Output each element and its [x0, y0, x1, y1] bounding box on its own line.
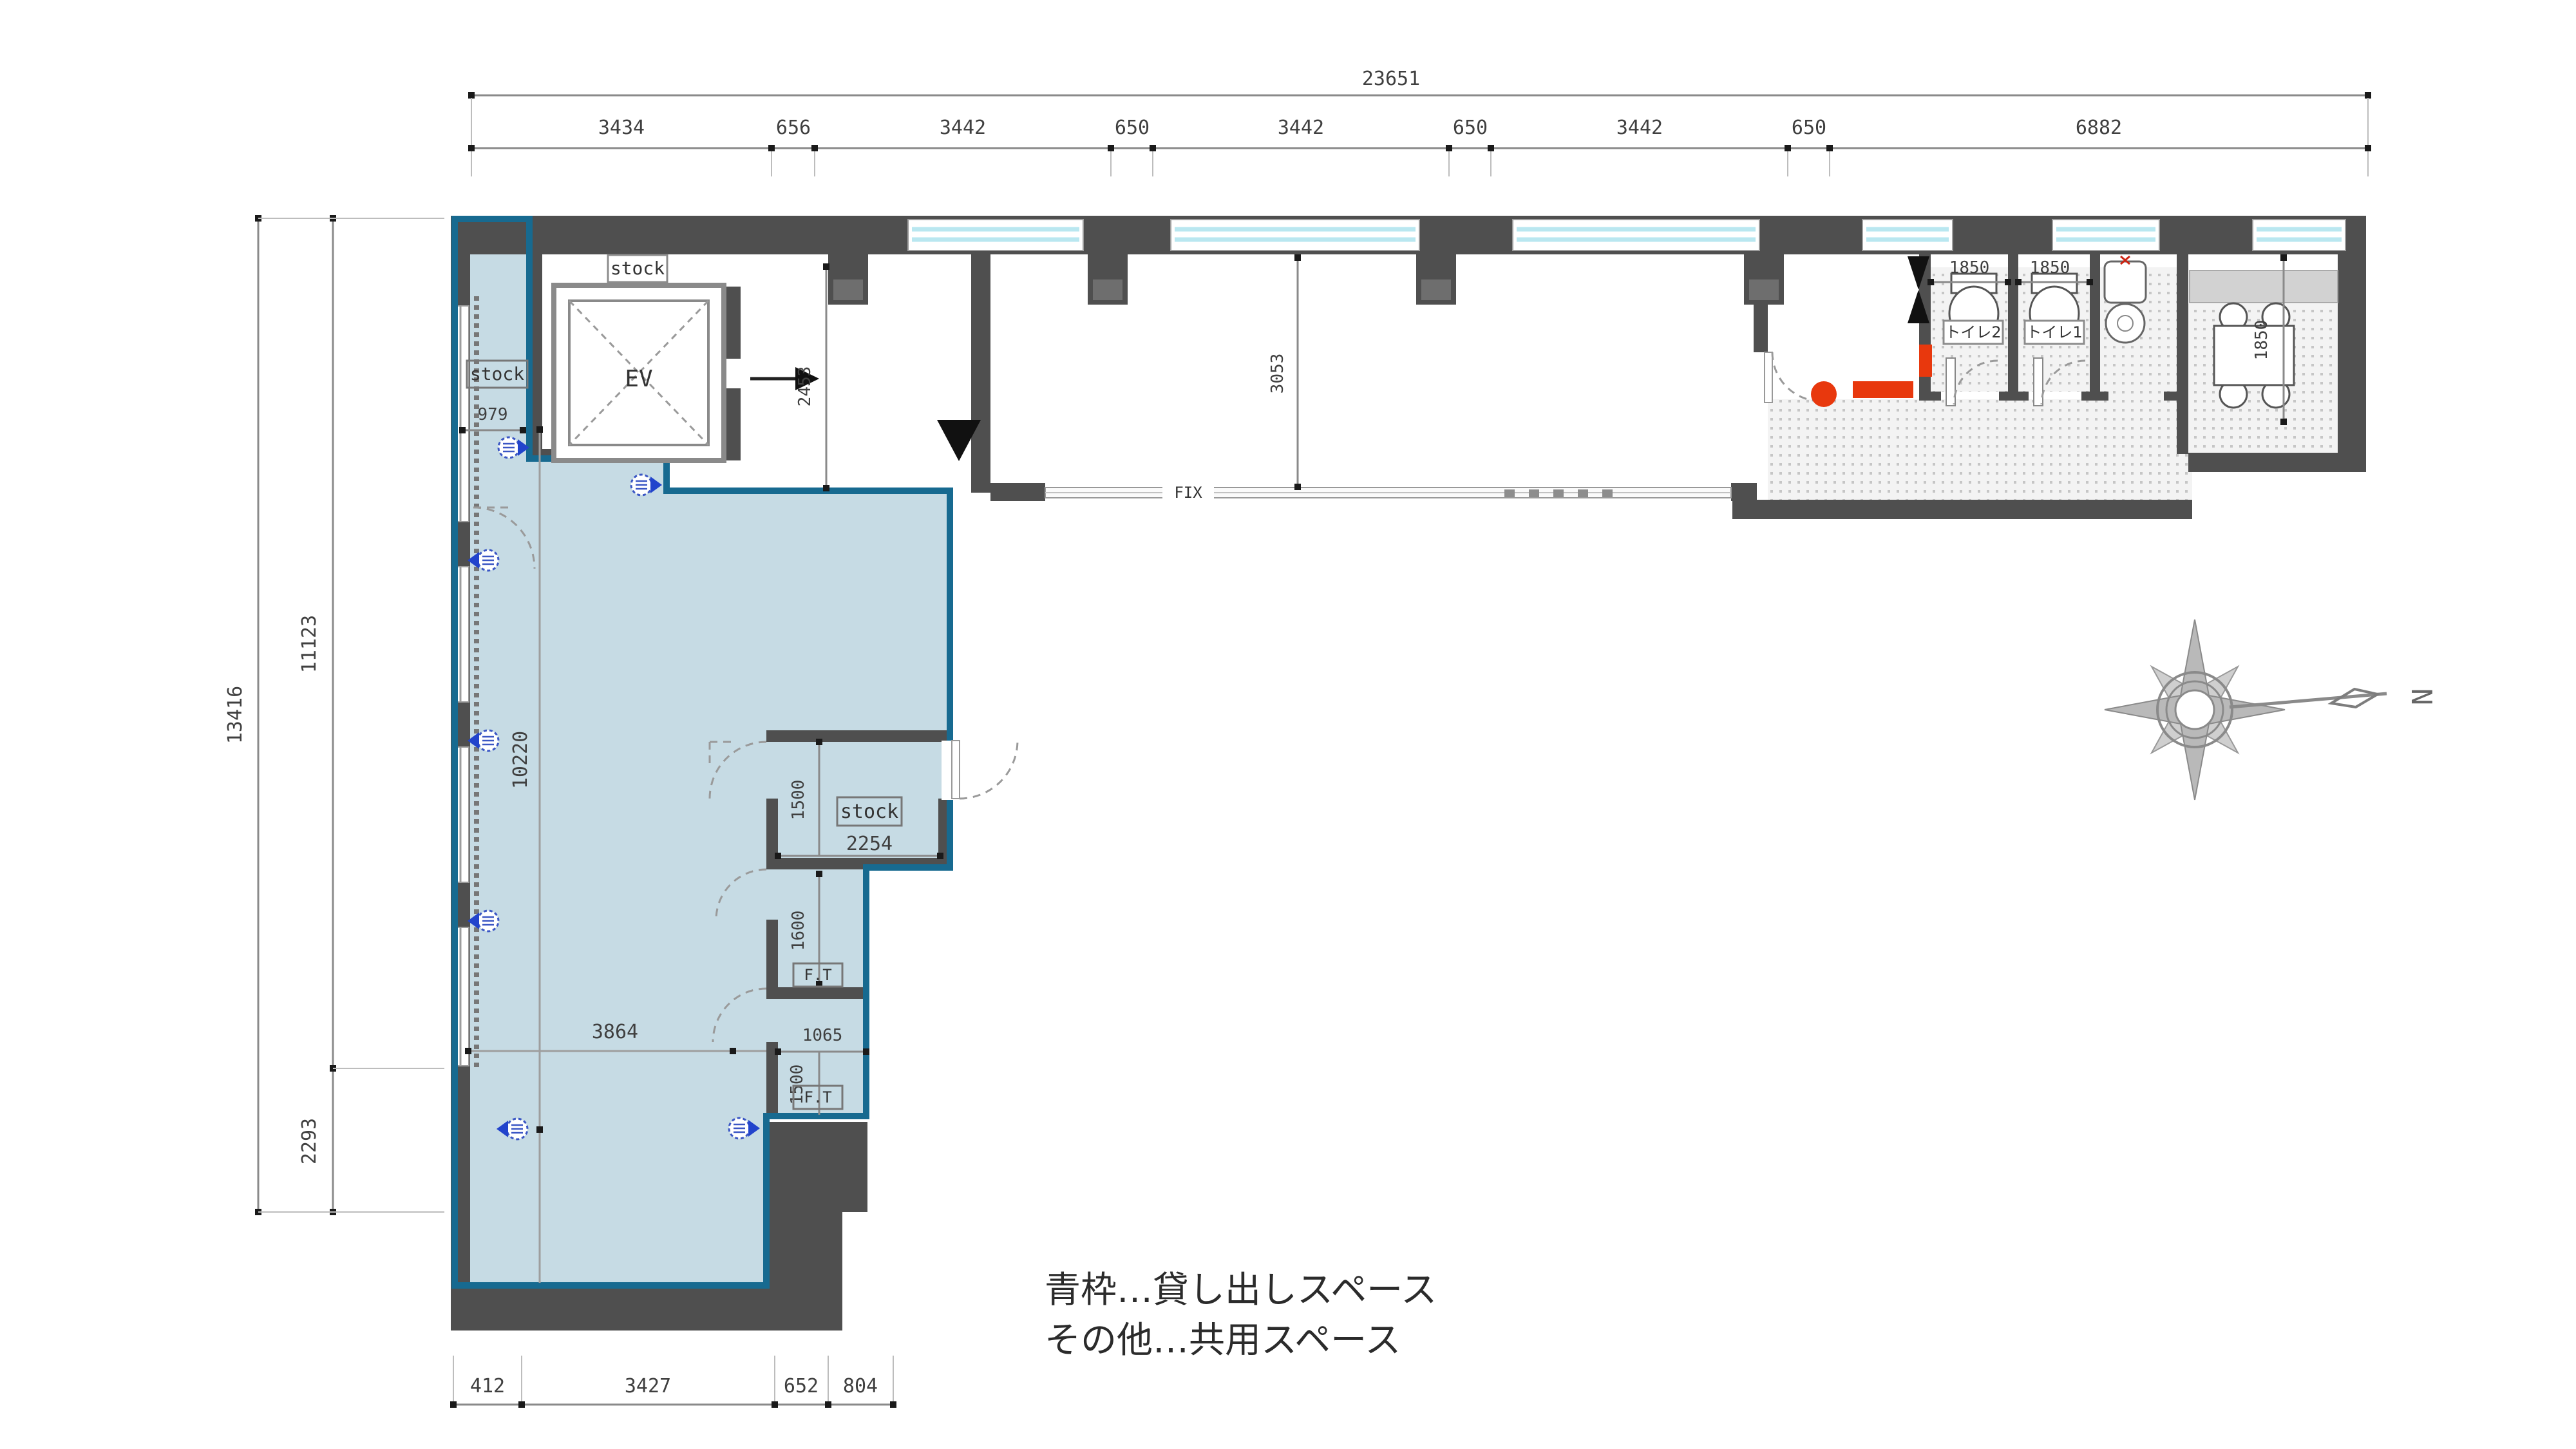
lower-stub-wall-b	[766, 1212, 842, 1331]
bottom-left-wall	[451, 1283, 817, 1331]
window-strip	[1171, 220, 1419, 251]
dim-bottom-seg-1: 3427	[625, 1375, 671, 1397]
pillar	[1744, 254, 1784, 305]
dim-toilet1-width: 1850	[2030, 258, 2070, 278]
dim-main-height: 10220	[509, 731, 532, 789]
corridor-door-leaf	[1765, 352, 1772, 402]
corridor-bottom-wall	[1732, 500, 2192, 519]
legend: 青枠…貸し出しスペース その他…共用スペース	[1045, 1269, 1437, 1361]
dim-bottom-seg-0: 412	[470, 1375, 505, 1397]
window-strip	[2052, 220, 2159, 251]
dim-top-seg-5: 650	[1453, 117, 1488, 139]
dim-top-seg-6: 3442	[1616, 117, 1663, 139]
right-outer-wall	[2338, 216, 2366, 472]
dim-top-seg-3: 650	[1115, 117, 1150, 139]
top-dimension-row: 23651 3434 656 3442 650 3442 650 3442 65…	[468, 68, 2371, 176]
ev-label: EV	[625, 366, 652, 392]
dim-bottom-seg-2: 652	[784, 1375, 819, 1397]
stock-top-label: stock	[611, 258, 665, 279]
bottom-dimension-row: 412 3427 652 804	[450, 1356, 896, 1408]
stall-bottom-stub-3	[2081, 392, 2108, 401]
dim-stock-center-height: 1500	[789, 780, 808, 820]
dim-ft-zone-height: 1600	[789, 911, 808, 951]
pillar	[1088, 254, 1128, 305]
fix-left-chunk	[990, 483, 1045, 501]
fix-right-chunk	[1731, 483, 1757, 501]
dim-top-seg-8: 6882	[2076, 117, 2122, 139]
ft-divider-wall	[766, 987, 867, 999]
stall-door-leaf	[2034, 358, 2043, 406]
fix-window: FIX	[1045, 484, 1731, 502]
dim-left-outer: 13416	[224, 686, 247, 744]
window-strip	[908, 220, 1083, 251]
floor-plan-drawing: EV stock stock 979 FIX	[0, 0, 2576, 1449]
kitchen-counter	[2190, 270, 2338, 303]
stall-divider-1	[2008, 254, 2018, 397]
north-arrow	[2230, 694, 2387, 707]
left-wing-right-wall	[971, 254, 990, 493]
dim-top-total: 23651	[1362, 68, 1420, 90]
stock-center-label: stock	[840, 800, 898, 823]
dim-top-seg-7: 650	[1792, 117, 1826, 139]
kitchen-bottom-wall	[2188, 453, 2366, 472]
stall-bottom-stub-4	[2164, 392, 2188, 401]
legend-line-1: 青枠…貸し出しスペース	[1045, 1269, 1437, 1311]
dim-top-seg-1: 656	[776, 117, 811, 139]
stock-left-label: stock	[470, 363, 524, 384]
dim-top-seg-0: 3434	[598, 117, 645, 139]
stock-center-left-wall	[766, 799, 778, 858]
stock-right-door-leaf	[952, 741, 960, 799]
stall-door-leaf	[1946, 358, 1955, 406]
window-strip	[2253, 220, 2345, 251]
lower-stub-wall-a	[766, 1122, 867, 1212]
dim-left-upper: 11123	[298, 615, 321, 673]
dim-stock-left-width: 979	[478, 405, 508, 424]
dim-hall-depth: 3053	[1268, 354, 1287, 394]
stock-center-top-wall	[766, 730, 950, 742]
north-label: N	[2405, 688, 2438, 706]
red-panel	[1919, 345, 1932, 377]
window-strip	[1513, 220, 1759, 251]
pillar	[1416, 254, 1456, 305]
dim-kitchen-depth: 1850	[2252, 320, 2271, 361]
elevator: EV	[554, 285, 724, 460]
left-dimension-column: 13416 11123 2293	[224, 215, 444, 1215]
north-arrow-feather	[2331, 689, 2378, 707]
dim-left-lower: 2293	[298, 1118, 321, 1164]
stock-right-door-swing	[960, 741, 1018, 799]
stall-bottom-stub-2	[1999, 392, 2029, 401]
legend-line-2: その他…共用スペース	[1045, 1320, 1401, 1361]
floor-plan-page: EV stock stock 979 FIX	[0, 0, 2576, 1449]
window-strip	[1862, 220, 1953, 251]
red-stool	[1811, 381, 1837, 407]
ft-upper-label: F.T	[804, 966, 831, 984]
stock-room-top: stock	[608, 255, 667, 282]
ft-lower-label: F.T	[804, 1088, 831, 1106]
dim-stock-center-width: 2254	[846, 833, 893, 855]
dim-top-seg-4: 3442	[1278, 117, 1324, 139]
dim-bottom-seg-3: 804	[843, 1375, 878, 1397]
ft-zone-left-wall-a	[766, 920, 778, 987]
pillar	[828, 254, 868, 305]
fix-label: FIX	[1174, 484, 1202, 502]
stall-bottom-stub-1	[1919, 392, 1941, 401]
dim-ft-zone-width: 1065	[802, 1026, 843, 1045]
dim-toilet2-width: 1850	[1949, 258, 1990, 278]
toilet1-label: トイレ1	[2026, 323, 2082, 341]
corridor-floor	[1768, 399, 2192, 500]
washbasin	[2105, 256, 2146, 343]
dim-main-width: 3864	[592, 1021, 638, 1043]
red-bench	[1853, 381, 1913, 398]
compass-rose: N	[2105, 620, 2438, 800]
dim-top-seg-2: 3442	[940, 117, 986, 139]
washroom-right-wall	[2177, 254, 2188, 454]
dim-entry-depth: 2453	[795, 366, 815, 407]
stall-divider-2	[2090, 254, 2100, 397]
toilet2-label: トイレ2	[1945, 323, 2001, 341]
